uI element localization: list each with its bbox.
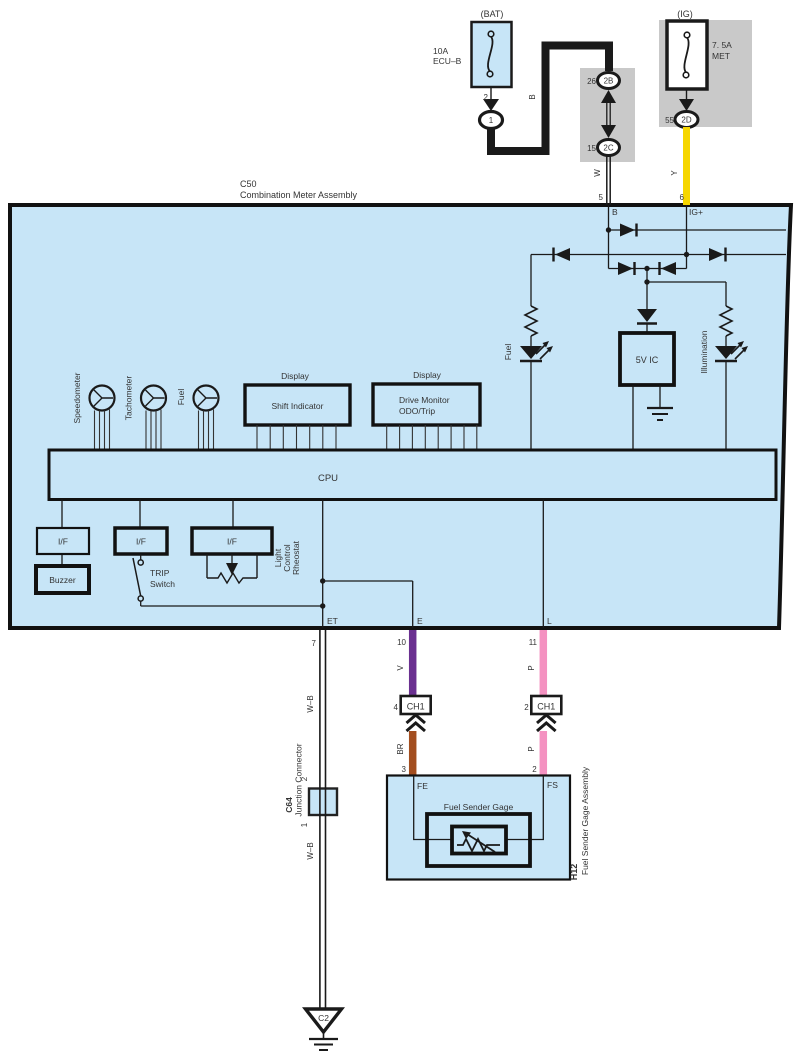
pin-6: 6 — [680, 193, 685, 202]
c50-code: C50 — [240, 179, 257, 189]
wire-br-label: BR — [396, 743, 405, 754]
pin-11: 11 — [529, 638, 538, 647]
pin-15: 15 — [587, 144, 596, 153]
fuel-led-label: Fuel — [503, 344, 513, 361]
pin-e-label: E — [417, 616, 423, 626]
ch1-right-pin: 2 — [524, 703, 529, 712]
c64-box — [309, 789, 337, 816]
ig-pin: 55 — [665, 116, 674, 125]
wire-p2-label: P — [527, 746, 536, 751]
rheostat-label3: Rheostat — [291, 540, 301, 575]
ig-title: (IG) — [677, 9, 693, 19]
wire-wb-label: W–B — [306, 695, 315, 712]
display1-title: Display — [281, 371, 310, 381]
sender-pin-fe: FE — [417, 781, 428, 791]
5v-ic-label: 5V IC — [636, 355, 659, 365]
if-label-2: I/F — [136, 537, 146, 547]
ch1-left-pin: 4 — [394, 703, 399, 712]
connector-2c-label: 2C — [603, 144, 613, 153]
ch1-right-chevron-icon — [537, 715, 556, 731]
cpu-label: CPU — [318, 473, 338, 484]
junction-dot — [606, 227, 611, 232]
display2-title: Display — [413, 370, 442, 380]
c50-pin-ig: IG+ — [689, 207, 703, 217]
buzzer-label: Buzzer — [49, 575, 76, 585]
pin-et-label: ET — [327, 616, 338, 626]
ch1-left-label: CH1 — [407, 702, 425, 712]
ch1-left-chevron-icon — [407, 715, 426, 731]
ground-c2-label: C2 — [318, 1013, 329, 1023]
ig-rating: 7. 5A — [712, 40, 732, 50]
pin-7: 7 — [312, 639, 317, 648]
drive-monitor-label: Drive Monitor — [399, 395, 450, 405]
ig-circuit: MET — [712, 51, 730, 61]
wire-v-label: V — [396, 665, 405, 671]
pin-5: 5 — [599, 193, 604, 202]
bat-fuse — [472, 22, 512, 129]
c50-name: Combination Meter Assembly — [240, 190, 358, 200]
trip-switch-label1: TRIP — [150, 568, 170, 578]
pin-26: 26 — [587, 77, 596, 86]
pin-2: 2 — [532, 765, 537, 774]
wiring-diagram: (BAT) 10A ECU–B 2 1 (IG) 7. 5A MET 55 2D… — [0, 0, 801, 1062]
cpu-box — [49, 450, 776, 500]
c64-code: C64 — [284, 797, 294, 813]
connector-2b-label: 2B — [604, 77, 614, 86]
c64-name: Junction Connector — [294, 743, 304, 816]
junction-dot — [684, 252, 689, 257]
junction-dot — [320, 578, 325, 583]
connector-1-label: 1 — [489, 116, 494, 125]
pin-3: 3 — [402, 765, 407, 774]
shift-indicator-label: Shift Indicator — [272, 401, 324, 411]
bat-circuit: ECU–B — [433, 56, 462, 66]
fuel-gauge-label: Fuel — [176, 389, 186, 406]
bat-title: (BAT) — [481, 9, 504, 19]
if-label-1: I/F — [58, 537, 68, 547]
c64-pin-bottom: 1 — [300, 822, 309, 827]
bat-pin: 2 — [484, 93, 489, 102]
pin-l-label: L — [547, 616, 552, 626]
wire-w-label: W — [593, 169, 602, 177]
sender-gage-label: Fuel Sender Gage — [444, 802, 514, 812]
c50-pin-b: B — [612, 207, 618, 217]
bat-rating: 10A — [433, 46, 448, 56]
wire-p-label: P — [527, 665, 536, 670]
connector-2d-label: 2D — [681, 116, 691, 125]
illumination-led-label: Illumination — [699, 330, 709, 373]
odo-trip-label: ODO/Trip — [399, 406, 435, 416]
sender-name: Fuel Sender Gage Assembly — [580, 766, 590, 875]
ch1-right-label: CH1 — [537, 702, 555, 712]
speedometer-label: Speedometer — [72, 372, 82, 423]
trip-switch-label2: Switch — [150, 579, 175, 589]
wiring-diagram-page: (BAT) 10A ECU–B 2 1 (IG) 7. 5A MET 55 2D… — [0, 0, 801, 1062]
wire-wb2-label: W–B — [306, 842, 315, 859]
if-label-3: I/F — [227, 537, 237, 547]
wire-b-label: B — [528, 94, 537, 99]
sender-code: H12 — [569, 864, 579, 881]
junction-dot — [320, 603, 325, 608]
sender-pin-fs: FS — [547, 780, 558, 790]
pin-10: 10 — [397, 638, 406, 647]
tachometer-label: Tachometer — [124, 376, 134, 421]
wire-y-label: Y — [670, 170, 679, 176]
